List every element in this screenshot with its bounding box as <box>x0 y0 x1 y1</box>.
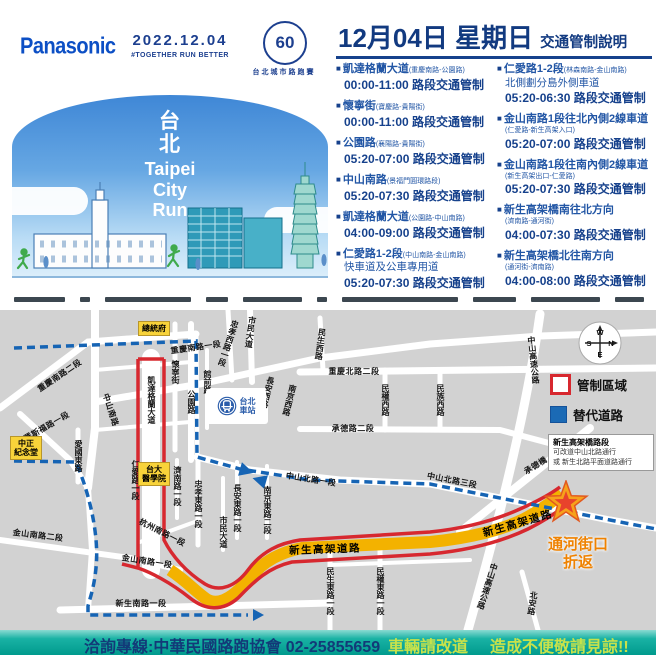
road-name: 金山南路1段往北內側2線車道 <box>504 113 648 125</box>
event-date: 2022.12.04 <box>124 32 236 49</box>
road-dashes <box>14 297 644 302</box>
station-name-line1: 台北 <box>240 397 256 406</box>
event-date-block: 2022.12.04 #TOGETHER RUN BETTER <box>124 32 236 59</box>
road-name: 公園路 <box>343 137 376 149</box>
info-item: ■凱達格蘭大道(重慶南路-公園路) 00:00-11:00 路段交通管制 <box>336 63 494 93</box>
control-time: 05:20-07:00 路段交通管制 <box>336 151 494 167</box>
control-time: 00:00-11:00 路段交通管制 <box>336 114 494 130</box>
landmark-label: 總統府 <box>138 321 170 336</box>
turnaround-line2: 折返 <box>538 554 618 572</box>
info-item: ■中山南路(景福門圓環路段) 05:20-07:30 路段交通管制 <box>336 174 494 204</box>
map-legend: W E S N 管制區域 替代道路 新生高架橋路段 可改道中山北路通行 或 新生… <box>548 320 652 471</box>
bullet-icon: ■ <box>497 64 502 73</box>
banner-title-en-2: City <box>12 180 328 201</box>
note-line: 可改道中山北路通行 <box>553 448 649 457</box>
notice-title-suffix: 交通管制說明 <box>540 35 627 51</box>
compass-w: W <box>596 328 604 337</box>
control-time: 05:20-07:30 路段交通管制 <box>336 275 494 291</box>
bullet-icon: ■ <box>336 212 341 221</box>
turnaround-star-icon <box>543 480 589 526</box>
compass-icon: W E S N <box>577 320 623 366</box>
note-line: 或 新生北路平面道路通行 <box>553 458 649 467</box>
info-item: ■懷寧街(寶慶路-貴陽街) 00:00-11:00 路段交通管制 <box>336 100 494 130</box>
control-time: 04:00-07:30 路段交通管制 <box>497 227 655 243</box>
restricted-area-swatch <box>550 374 571 395</box>
info-item: ■仁愛路1-2段(中山南路-金山南路) 快車道及公車專用道 05:20-07:3… <box>336 248 494 291</box>
bullet-icon: ■ <box>336 138 341 147</box>
legend-restricted-label: 管制區域 <box>577 375 627 394</box>
bullet-icon: ■ <box>497 160 502 169</box>
compass-e: E <box>597 350 602 359</box>
road-name: 仁愛路1-2段 <box>343 248 403 260</box>
footer-bar: 洽詢專線:中華民國路跑協會 02-25855659 車輛請改道造成不便敬請見諒!… <box>0 630 656 655</box>
compass-s: S <box>586 339 591 348</box>
event-banner: 台 北 Taipei City Run <box>12 95 328 293</box>
road-name: 仁愛路1-2段 <box>504 63 564 75</box>
road-name: 凱達格蘭大道 <box>343 63 409 75</box>
train-station-icon <box>217 396 237 416</box>
note-title: 新生高架橋路段 <box>553 438 649 448</box>
advisory-part1: 車輛請改道 <box>388 639 468 655</box>
banner-ground <box>12 276 328 293</box>
road-name: 中山南路 <box>343 174 387 186</box>
info-item: ■凱達格蘭大道(公園路-中山南路) 04:00-09:00 路段交通管制 <box>336 211 494 241</box>
info-item: ■金山南路1段往北內側2線車道 (仁愛路-新生高架入口) 05:20-07:00… <box>497 113 655 152</box>
turnaround-label: 通河街口 折返 <box>538 536 618 572</box>
legend-alternate: 替代道路 <box>550 405 652 424</box>
lane-note: 快車道及公車專用道 <box>336 261 494 274</box>
legend-note: 新生高架橋路段 可改道中山北路通行 或 新生北路平面道路通行 <box>548 434 654 471</box>
bullet-icon: ■ <box>336 101 341 110</box>
road-section: (中山南路-金山南路) <box>403 252 466 259</box>
banner-title: 台 北 Taipei City Run <box>12 111 328 221</box>
banner-title-zh-1: 台 <box>12 111 328 132</box>
road-section: (仁愛路-新生高架入口) <box>497 127 655 136</box>
road-name: 金山南路1段往南內側2線車道 <box>504 159 648 171</box>
advisory-part2: 造成不便敬請見諒!! <box>490 639 629 655</box>
road-name: 懷寧街 <box>343 100 376 112</box>
advisory-text: 車輛請改道造成不便敬請見諒!! <box>388 633 629 655</box>
landmark-label: 台大醫學院 <box>138 462 170 486</box>
hotline-text: 洽詢專線:中華民國路跑協會 02-25855659 <box>84 633 380 655</box>
event-name: 台北城市路跑賽 <box>240 67 328 77</box>
bullet-icon: ■ <box>497 114 502 123</box>
banner-title-en-1: Taipei <box>12 159 328 180</box>
bullet-icon: ■ <box>497 205 502 214</box>
road-section: (濟南路-通河街) <box>497 218 655 227</box>
traffic-map: 重慶南路一段重慶南路二段羅斯福路一段中山南路凱達格蘭大道懷寧街公園路館前路忠孝西… <box>0 310 656 630</box>
turnaround-line1: 通河街口 <box>538 536 618 554</box>
road-section: (林森南路-金山南路) <box>564 67 627 74</box>
station-name-line2: 車站 <box>240 406 256 415</box>
compass-n: N <box>608 339 613 348</box>
info-item: ■新生高架橋北往南方向 (通河街-濟南路) 04:00-08:00 路段交通管制 <box>497 250 655 289</box>
road-name: 新生高架橋南往北方向 <box>504 204 614 216</box>
road-section: (襄陽路-貴陽街) <box>376 141 425 148</box>
info-item: ■新生高架橋南往北方向 (濟南路-通河街) 04:00-07:30 路段交通管制 <box>497 204 655 243</box>
info-item: ■公園路(襄陽路-貴陽街) 05:20-07:00 路段交通管制 <box>336 137 494 167</box>
notice-title: 12月04日 星期日交通管制說明 <box>338 18 627 55</box>
legend-restricted: 管制區域 <box>550 374 652 395</box>
bullet-icon: ■ <box>336 249 341 258</box>
road-section: (通河街-濟南路) <box>497 264 655 273</box>
control-time: 04:00-09:00 路段交通管制 <box>336 225 494 241</box>
bullet-icon: ■ <box>497 251 502 260</box>
notice-divider <box>336 56 652 59</box>
banner-title-zh-2: 北 <box>12 134 328 155</box>
control-time: 05:20-07:30 路段交通管制 <box>497 181 655 197</box>
control-time: 00:00-11:00 路段交通管制 <box>336 77 494 93</box>
alternate-road-swatch <box>550 406 567 423</box>
info-item: ■仁愛路1-2段(林森南路-金山南路) 北側劃分島外側車道 05:20-06:3… <box>497 63 655 106</box>
landmark-label: 中正紀念堂 <box>10 436 42 460</box>
station-badge: 台北 車站 <box>206 389 266 423</box>
road-name: 新生高架橋北往南方向 <box>504 250 614 262</box>
bullet-icon: ■ <box>336 175 341 184</box>
info-item: ■金山南路1段往南內側2線車道 (新生高架出口-仁愛路) 05:20-07:30… <box>497 159 655 198</box>
road-section: (新生高架出口-仁愛路) <box>497 173 655 182</box>
info-column-left: ■凱達格蘭大道(重慶南路-公園路) 00:00-11:00 路段交通管制 ■懷寧… <box>336 63 494 298</box>
notice-title-date: 12月04日 星期日 <box>338 23 533 53</box>
anniversary-60-icon: 60 <box>263 21 307 65</box>
control-time: 05:20-07:30 路段交通管制 <box>336 188 494 204</box>
banner-title-en-3: Run <box>12 200 328 221</box>
bullet-icon: ■ <box>336 64 341 73</box>
info-column-right: ■仁愛路1-2段(林森南路-金山南路) 北側劃分島外側車道 05:20-06:3… <box>497 63 655 296</box>
lane-note: 北側劃分島外側車道 <box>497 77 655 90</box>
event-slogan: #TOGETHER RUN BETTER <box>124 52 236 59</box>
legend-alternate-label: 替代道路 <box>573 405 623 424</box>
control-time: 04:00-08:00 路段交通管制 <box>497 273 655 289</box>
road-name: 凱達格蘭大道 <box>343 211 409 223</box>
road-section: (寶慶路-貴陽街) <box>376 104 425 111</box>
road-section: (公園路-中山南路) <box>409 215 465 222</box>
road-section: (重慶南路-公園路) <box>409 67 465 74</box>
panasonic-logo: Panasonic <box>20 34 116 60</box>
traffic-control-poster: Panasonic 2022.12.04 #TOGETHER RUN BETTE… <box>0 0 656 655</box>
control-time: 05:20-07:00 路段交通管制 <box>497 136 655 152</box>
road-section: (景福門圓環路段) <box>387 178 441 185</box>
control-time: 05:20-06:30 路段交通管制 <box>497 90 655 106</box>
